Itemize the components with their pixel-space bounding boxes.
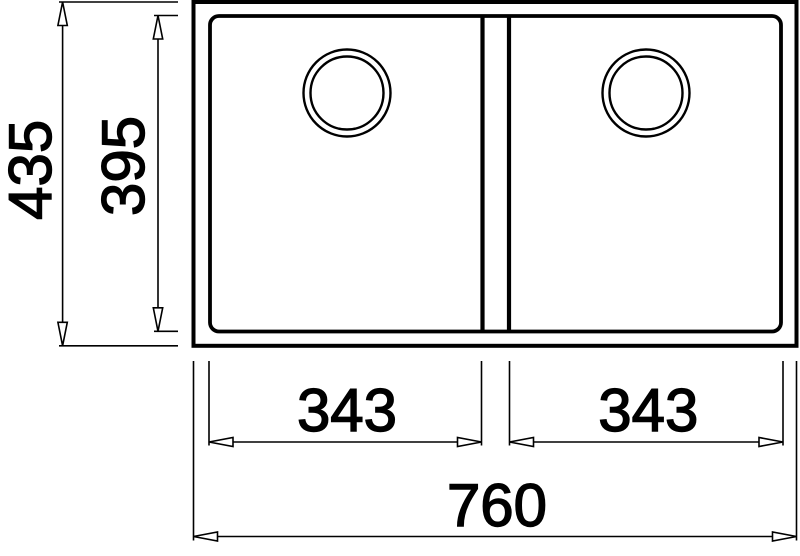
svg-text:760: 760 <box>447 472 547 539</box>
svg-text:343: 343 <box>598 377 698 444</box>
svg-text:395: 395 <box>90 116 157 216</box>
svg-text:343: 343 <box>297 377 397 444</box>
svg-text:435: 435 <box>0 120 64 220</box>
